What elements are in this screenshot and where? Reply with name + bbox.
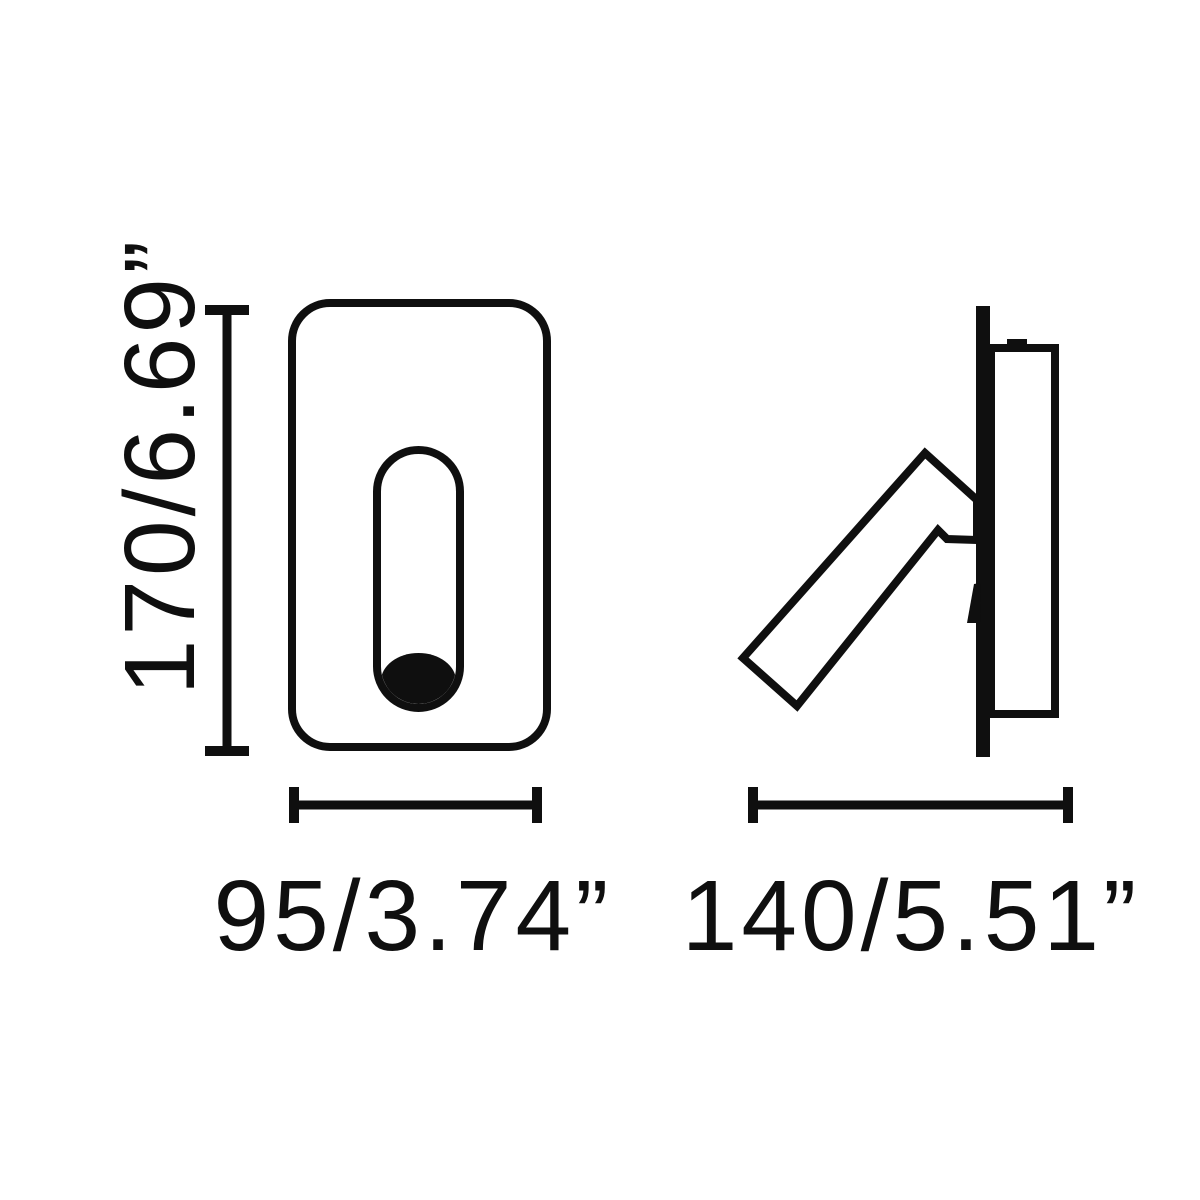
side-cable-wedge: [967, 583, 981, 623]
side-depth-dimension: 140/5.51”: [682, 787, 1141, 972]
side-depth-dimension-label: 140/5.51”: [682, 860, 1141, 972]
side-housing-tab: [1007, 339, 1027, 351]
side-recessed-housing: [991, 348, 1055, 714]
front-view: [292, 303, 547, 747]
technical-drawing-page: 170/6.69” 95/3.74” 140/5.51”: [0, 0, 1200, 1200]
technical-drawing-svg: 170/6.69” 95/3.74” 140/5.51”: [0, 0, 1200, 1200]
height-dimension-label: 170/6.69”: [104, 237, 216, 696]
front-width-dimension: 95/3.74”: [214, 787, 613, 972]
height-dimension: 170/6.69”: [104, 237, 249, 751]
side-adjustable-arm: [743, 453, 977, 706]
front-width-dimension-label: 95/3.74”: [214, 860, 613, 972]
side-view: [743, 306, 1055, 757]
